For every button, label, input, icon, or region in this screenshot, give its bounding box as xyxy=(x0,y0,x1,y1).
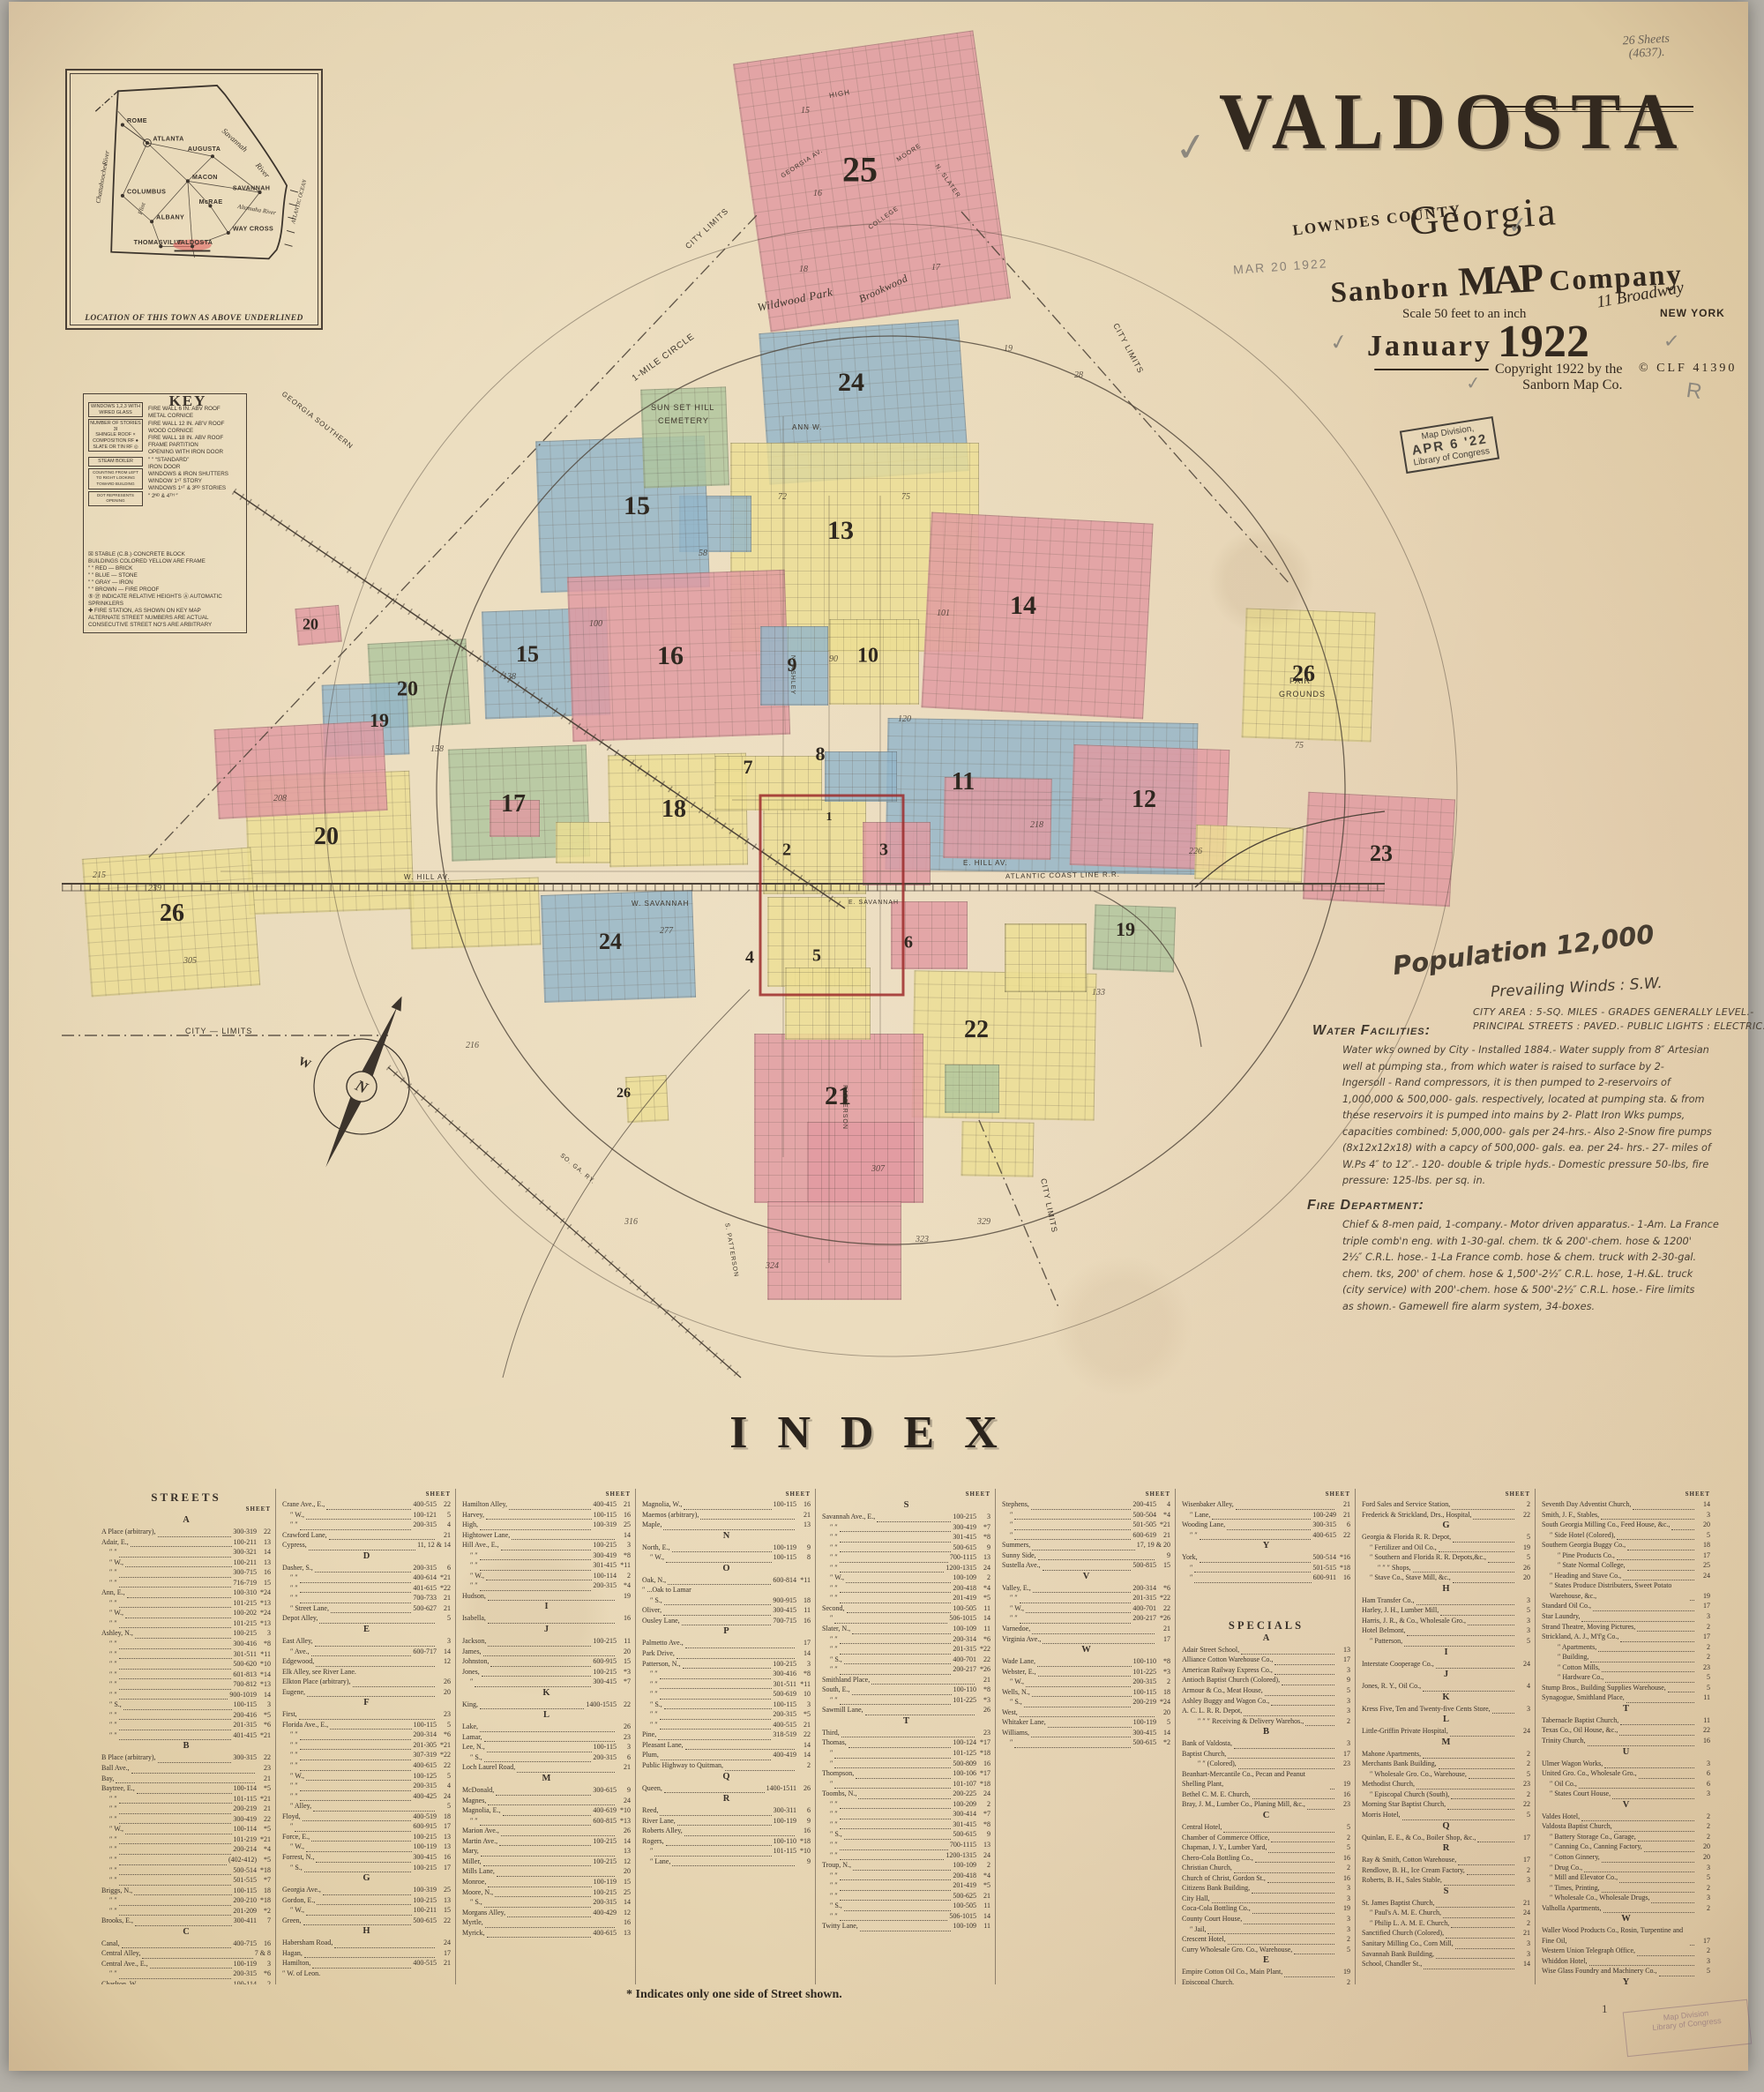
index-letter: Q xyxy=(642,1771,811,1783)
index-entry: Roberts, B. H., Sales Stable,3 xyxy=(1362,1875,1530,1886)
index-entry: James,20 xyxy=(462,1647,631,1657)
index-entry: Harley, J. H., Lumber Mill,5 xyxy=(1362,1605,1530,1616)
index-entry: ″501-505*21 xyxy=(1002,1520,1170,1530)
city-label: ALBANY xyxy=(156,214,184,221)
index-entry: ″ ″300-32114 xyxy=(101,1547,271,1558)
index-specials-header: SPECIALS xyxy=(1182,1618,1350,1633)
index-letter: V xyxy=(1002,1571,1170,1583)
index-entry: ″ ″500-514*18 xyxy=(101,1865,271,1876)
index-entry: Magnolia, W.,100-11516 xyxy=(642,1499,811,1510)
index-letter: N xyxy=(642,1530,811,1543)
city-label: ROME xyxy=(127,117,147,124)
index-entry: Lee, N.,100-1153 xyxy=(462,1742,631,1752)
received-date-stamp: MAR 20 1922 xyxy=(1233,256,1328,276)
map-block xyxy=(945,1065,999,1113)
index-entry: ″ ″400-614*21 xyxy=(282,1573,451,1583)
index-entry: Gordon, E.,100-21513 xyxy=(282,1895,451,1906)
district-number-label: 25 xyxy=(842,149,878,191)
index-entry: Brooks, E.,300-4117 xyxy=(101,1916,271,1926)
index-entry: Central Alley,7 & 8 xyxy=(101,1948,271,1959)
index-entry: Depot Alley,5 xyxy=(282,1613,451,1624)
sheets-count-note: 26 Sheets(4637). xyxy=(1622,33,1671,62)
index-entry: Georgia Ave.,100-31925 xyxy=(282,1885,451,1895)
index-entry: ″500-80916 xyxy=(822,1759,990,1769)
index-entry: ″ ″200-315*6 xyxy=(101,1969,271,1979)
corner-division-stamp: Map Division Library of Congress xyxy=(1623,1999,1753,2058)
index-column: SHEETFord Sales and Service Station,2Fre… xyxy=(1355,1489,1535,1984)
key-line: ″ ″ BROWN — FIRE PROOF xyxy=(88,587,242,594)
street-label: SO. GA. RY. xyxy=(559,1153,597,1185)
index-entry: Tabernacle Baptist Church,11 xyxy=(1542,1715,1710,1726)
index-entry: ″ Street Lane,500-62721 xyxy=(282,1603,451,1614)
street-label: E. HILL AV. xyxy=(963,859,1008,867)
district-number-label: 8 xyxy=(816,743,826,766)
index-letter: R xyxy=(642,1793,811,1805)
index-entry: B Place (arbitrary),300-31522 xyxy=(101,1752,271,1763)
index-entry: ″ ″201-209*2 xyxy=(101,1906,271,1916)
district-number-label: 18 xyxy=(661,796,686,824)
index-entry: Dasher, S.,200-3156 xyxy=(282,1563,451,1573)
index-entry: A Place (arbitrary),300-31922 xyxy=(101,1527,271,1537)
index-entry: ″ W.,100-114*5 xyxy=(101,1824,271,1834)
index-entry: ″ Alley,5 xyxy=(282,1801,451,1812)
index-entry: Wells, N.,100-11518 xyxy=(1002,1687,1170,1698)
index-entry: River Lane,100-1199 xyxy=(642,1816,811,1827)
index-entry: ″506-101514 xyxy=(822,1613,990,1624)
index-column: SHEETSeventh Day Adventist Church,14Smit… xyxy=(1535,1489,1715,1984)
index-letter: O xyxy=(642,1563,811,1575)
key-legend-tail: ☒ STABLE (C.B.)·CONCRETE BLOCKBUILDINGS … xyxy=(88,551,242,629)
index-entry: ″ State Normal College,25 xyxy=(1542,1560,1710,1571)
index-entry: Webster, E.,101-225*3 xyxy=(1002,1667,1170,1677)
index-entry: Public Highway to Quitman,2 xyxy=(642,1760,811,1771)
index-entry: Baptist Church,17 xyxy=(1182,1749,1350,1760)
index-entry: Waller Wood Products Co., Rosin, Turpent… xyxy=(1542,1925,1710,1946)
index-entry: Kress Five, Ten and Twenty-five Cents St… xyxy=(1362,1704,1530,1715)
index-letter: P xyxy=(642,1625,811,1638)
key-line: ☒ STABLE (C.B.)·CONCRETE BLOCK xyxy=(88,551,242,558)
index-entry: Savannah Bank Building,3 xyxy=(1362,1949,1530,1960)
index-entry: ″ S.,100-21517 xyxy=(282,1863,451,1873)
water-facilities-text: Water wks owned by City - Installed 1884… xyxy=(1342,1042,1712,1190)
index-entry: ″ Lane,9 xyxy=(642,1857,811,1867)
map-block xyxy=(625,1075,669,1123)
index-entry: ″ W.,100-202*24 xyxy=(101,1608,271,1618)
index-entry: ″ ″716-71915 xyxy=(101,1578,271,1588)
street-label: W. SAVANNAH xyxy=(632,900,689,908)
index-entry: West,20 xyxy=(1002,1707,1170,1718)
index-letter: G xyxy=(282,1872,451,1885)
map-block xyxy=(912,970,1097,1121)
index-entry: Isabella,16 xyxy=(462,1613,631,1624)
index-entry: ″ ″201-305*21 xyxy=(282,1740,451,1751)
street-label: 1-MILE CIRCLE xyxy=(631,332,697,384)
index-letter: S xyxy=(1362,1886,1530,1898)
index-column: SHEETSSavannah Ave., E.,100-2153″ ″300-4… xyxy=(815,1489,995,1984)
index-entry: Cypress,11, 12 & 14 xyxy=(282,1540,451,1550)
lot-number: 216 xyxy=(466,1041,479,1050)
index-entry: Patterson, N.,100-2153 xyxy=(642,1659,811,1670)
key-line: WINDOW 1ˢᵀ STORY xyxy=(148,478,242,485)
index-entry: Central Ave., E.,100-1193 xyxy=(101,1959,271,1969)
index-entry: King,1400-151522 xyxy=(462,1700,631,1710)
index-letter: R xyxy=(1362,1842,1530,1855)
district-number-label: 4 xyxy=(745,948,754,968)
index-letter: S xyxy=(822,1499,990,1512)
scanned-map-sheet: SavannahRiverChattahoocheeRiverFlintAlta… xyxy=(9,2,1748,2071)
index-entry: ″ Patterson,5 xyxy=(1362,1636,1530,1647)
index-entry: ″ ″200-21921 xyxy=(101,1804,271,1814)
index-entry: ″ Drug Co.,3 xyxy=(1542,1863,1710,1873)
index-entry: ″ ″1200-131524 xyxy=(822,1850,990,1861)
index-entry: ″ ″506-101514 xyxy=(822,1911,990,1922)
lot-number: 90 xyxy=(829,654,838,664)
index-letter: H xyxy=(282,1925,451,1938)
index-letter: Y xyxy=(1542,1976,1710,1984)
district-number-label: 17 xyxy=(501,790,526,818)
index-entry: East Alley,3 xyxy=(282,1636,451,1647)
edition-year: 1922 xyxy=(1498,316,1589,368)
index-entry: ″ ″301-511*11 xyxy=(642,1679,811,1690)
index-entry: Harvey,100-11516 xyxy=(462,1510,631,1520)
index-entry: Moore, N.,100-21525 xyxy=(462,1887,631,1898)
index-entry: ″ ″201-315*22 xyxy=(1002,1593,1170,1603)
district-number-label: 19 xyxy=(1116,918,1135,941)
index-entry: American Railway Express Co.,3 xyxy=(1182,1665,1350,1676)
map-block xyxy=(714,756,822,811)
index-entry: Jackson,100-21511 xyxy=(462,1636,631,1647)
library-of-congress-stamp: Map Division, APR 6 '22 Library of Congr… xyxy=(1400,416,1500,474)
index-entry: Coca-Cola Bottling Co.,19 xyxy=(1182,1903,1350,1914)
pencil-checkmark: ✓ xyxy=(1507,211,1529,240)
index-entry: Sustella Ave.,500-81515 xyxy=(1002,1560,1170,1571)
lot-number: 15 xyxy=(801,106,810,116)
street-label: PATTERSON xyxy=(841,1085,848,1130)
index-entry: Mary,13 xyxy=(462,1846,631,1857)
index-letter: I xyxy=(1362,1647,1530,1659)
index-entry: Ashley Buggy and Wagon Co.,3 xyxy=(1182,1696,1350,1707)
index-sheet-header: SHEET xyxy=(822,1489,990,1499)
index-entry: ″ W.,100-1215 xyxy=(282,1510,451,1520)
map-block xyxy=(1194,825,1304,883)
index-entry: ″ Oil Co.,6 xyxy=(1542,1779,1710,1789)
index-entry: Hagan,17 xyxy=(282,1948,451,1959)
index-entry: Third,23 xyxy=(822,1728,990,1738)
index-letter: V xyxy=(1542,1799,1710,1812)
map-key-legend: KEY WINDOWS 1,2,3 WITHWIRED GLASS NUMBER… xyxy=(83,393,247,633)
index-entry: Savannah Ave., E.,100-2153 xyxy=(822,1512,990,1522)
index-entry: Ann, E.,100-310*24 xyxy=(101,1588,271,1598)
river-label: ATLANTIC OCEAN xyxy=(290,178,308,225)
index-entry: ″ ″301-415*8 xyxy=(822,1819,990,1830)
index-entry: Miller,100-21512 xyxy=(462,1857,631,1867)
index-entry: Sunny Side,9 xyxy=(1002,1550,1170,1561)
lot-number: 28 xyxy=(1074,370,1083,380)
index-entry: Citizens Bank Building,3 xyxy=(1182,1883,1350,1894)
index-entry: Ball Ave.,23 xyxy=(101,1763,271,1774)
street-label: S. PATTERSON xyxy=(723,1222,739,1278)
index-entry: Whitaker Lane,100-1195 xyxy=(1002,1717,1170,1728)
district-number-label: 10 xyxy=(857,645,878,669)
index-entry: ″ Heading and Stave Co.,24 xyxy=(1542,1571,1710,1581)
index-entry: ″ Cotton Ginnery,20 xyxy=(1542,1852,1710,1863)
index-entry: Palmetto Ave.,17 xyxy=(642,1638,811,1648)
index-entry: Magnolia, E.,400-619*10 xyxy=(462,1805,631,1816)
index-entry: Roberts Alley,16 xyxy=(642,1826,811,1836)
lot-number: 323 xyxy=(916,1235,929,1244)
index-entry: Methodist Church,23 xyxy=(1362,1779,1530,1789)
river-label: Flint xyxy=(137,201,147,216)
index-entry: Mahone Apartments,2 xyxy=(1362,1749,1530,1760)
index-entry: ″ S.,100-50511 xyxy=(822,1901,990,1911)
index-entry: ″ ″200-315*5 xyxy=(642,1709,811,1720)
index-entry: Valley, E.,200-314*6 xyxy=(1002,1583,1170,1594)
key-title: KEY xyxy=(134,398,242,405)
title-flourish-line xyxy=(1499,111,1693,112)
copyright-serial: © CLF 41390 xyxy=(1639,362,1737,376)
index-entry: ″ ″ (Colored),23 xyxy=(1182,1759,1350,1769)
index-entry: ″ Times, Printing,2 xyxy=(1542,1883,1710,1894)
index-letter: H xyxy=(1362,1583,1530,1595)
index-entry: High,100-31925 xyxy=(462,1520,631,1530)
georgia-outline-map: SavannahRiverChattahoocheeRiverFlintAlta… xyxy=(76,78,309,298)
pencil-checkmark: ✓ xyxy=(1328,328,1350,356)
lot-number: 307 xyxy=(871,1164,885,1174)
district-number-label: 24 xyxy=(838,368,864,398)
index-entry: ″ ″500-6159 xyxy=(822,1543,990,1553)
index-entry: Texas Co., Oil House, &c.,22 xyxy=(1542,1725,1710,1736)
key-legend-lines: FIRE WALL 6 IN. ABV ROOFMETAL CORNICEFIR… xyxy=(148,406,242,500)
index-entry: Twitty Lane,100-10911 xyxy=(822,1921,990,1931)
index-entry: ″ ″300-71516 xyxy=(101,1567,271,1578)
map-block xyxy=(785,968,871,1040)
copyright-note: Copyright 1922 by theSanborn Map Co. xyxy=(1495,362,1622,393)
index-entry: Empire Cotton Oil Co., Main Plant,19 xyxy=(1182,1967,1350,1977)
index-entry: Adair Street School,13 xyxy=(1182,1645,1350,1655)
district-number-label: 16 xyxy=(657,641,684,671)
index-letter: T xyxy=(822,1715,990,1728)
index-entry: ″ ″400-61522 xyxy=(282,1760,451,1771)
index-entry: ″ Fertilizer and Oil Co.,19 xyxy=(1362,1543,1530,1553)
index-entry: Little-Griffin Private Hospital,24 xyxy=(1362,1726,1530,1737)
svg-text:W: W xyxy=(296,1055,313,1072)
index-entry: ″ ″500-620*10 xyxy=(101,1659,271,1670)
index-note: ″ ...Oak to Lamar xyxy=(642,1585,811,1595)
index-letter: Y xyxy=(1182,1540,1350,1552)
index-entry: ″ ″101-215*13 xyxy=(101,1618,271,1629)
index-note: ″ W. of Leon. xyxy=(282,1969,451,1979)
index-entry: Maemos (arbitrary),21 xyxy=(642,1510,811,1520)
street-label: CITY — LIMITS xyxy=(185,1027,252,1035)
title-flourish-line xyxy=(1473,106,1693,108)
index-entry: Hotel Belmont,3 xyxy=(1362,1625,1530,1636)
index-entry: Edgewood,12 xyxy=(282,1656,451,1667)
index-entry: Episcopal Church,2 xyxy=(1182,1977,1350,1984)
lot-number: 100 xyxy=(589,619,602,629)
index-letter: T xyxy=(1542,1703,1710,1715)
index-entry: ″ Side Hotel (Colored),5 xyxy=(1542,1530,1710,1541)
key-line: FIRE WALL 18 IN. ABV ROOF xyxy=(148,435,242,442)
district-number-label: 24 xyxy=(599,929,622,955)
street-label: CITY LIMITS xyxy=(684,206,730,250)
index-entry: Valdosta Baptist Church,2 xyxy=(1542,1821,1710,1832)
district-number-label: 3 xyxy=(879,841,888,861)
lot-number: 316 xyxy=(624,1217,638,1227)
index-entry: ″ W.,100-11913 xyxy=(282,1842,451,1852)
lot-number: 19 xyxy=(1004,344,1013,354)
index-entry: ″ ″700-812*13 xyxy=(101,1679,271,1690)
index-entry: City Hall,3 xyxy=(1182,1894,1350,1904)
index-streets-header: STREETS xyxy=(101,1491,271,1504)
lot-number: 101 xyxy=(937,609,950,618)
map-block xyxy=(960,1121,1034,1177)
city-label: ATLANTA xyxy=(153,135,183,142)
index-letter: Q xyxy=(1362,1820,1530,1833)
index-entry: ″ W.,100-1255 xyxy=(282,1771,451,1782)
index-entry: ″ ″201-315*22 xyxy=(822,1644,990,1655)
index-sheet-header: SHEET xyxy=(1182,1489,1350,1499)
index-letter: L xyxy=(1362,1714,1530,1726)
index-entry: Chapman, J. Y., Lumber Yard,5 xyxy=(1182,1842,1350,1853)
index-title: INDEX xyxy=(9,1407,1748,1459)
district-number-label: 26 xyxy=(160,900,184,928)
street-label: FAIR xyxy=(1289,676,1311,685)
index-entry: Star Laundry,3 xyxy=(1542,1611,1710,1622)
index-entry: ″ Ave.,600-71714 xyxy=(282,1647,451,1657)
index-entry: ″ ″200-416*5 xyxy=(101,1710,271,1721)
index-entry: Plum,400-41914 xyxy=(642,1750,811,1760)
index-entry: McDonald,300-6159 xyxy=(462,1785,631,1796)
index-entry: ″ ″601-813*14 xyxy=(101,1670,271,1680)
index-entry: Stephens,200-4154 xyxy=(1002,1499,1170,1510)
index-entry: ″ S.,200-3156 xyxy=(462,1752,631,1763)
index-entry: ″ W.,200-3152 xyxy=(1002,1677,1170,1687)
index-entry: Synagogue, Smithland Place,11 xyxy=(1542,1692,1710,1703)
index-entry: ″ ″101-215*13 xyxy=(101,1598,271,1609)
index-letter: A xyxy=(101,1514,271,1527)
street-label: GROUNDS xyxy=(1279,690,1326,699)
index-entry: Loch Laurel Road,21 xyxy=(462,1762,631,1773)
district-number-label: 15 xyxy=(624,491,650,521)
key-line: FIRE WALL 12 IN. AB'V ROOF xyxy=(148,421,242,428)
index-entry: Martin Ave.,100-21514 xyxy=(462,1836,631,1847)
index-entry: ″ Battery Storage Co., Garage,2 xyxy=(1542,1832,1710,1842)
index-entry: Wooding Lane,300-3156 xyxy=(1182,1520,1350,1530)
index-entry: ″ Philip L. A. M. E. Church,2 xyxy=(1362,1918,1530,1929)
index-letter: B xyxy=(101,1740,271,1752)
page-title: VALDOSTA xyxy=(1219,76,1686,168)
index-letter: M xyxy=(462,1773,631,1785)
index-entry: Chamber of Commerce Office,2 xyxy=(1182,1833,1350,1843)
index-column: SHEETStephens,200-4154″500-504*4″501-505… xyxy=(995,1489,1175,1984)
map-block xyxy=(863,822,931,885)
index-entry: ″ Building,2 xyxy=(1542,1652,1710,1662)
index-entry: Stump Bros., Building Supplies Warehouse… xyxy=(1542,1683,1710,1693)
index-entry: Ousley Lane,700-71516 xyxy=(642,1616,811,1626)
index-entry: ″ S.,100-1153 xyxy=(642,1700,811,1710)
index-entry: Wade Lane,100-110*8 xyxy=(1002,1656,1170,1667)
key-line: WINDOWS & IRON SHUTTERS xyxy=(148,471,242,478)
index-entry: Hill Ave., E.,100-2153 xyxy=(462,1540,631,1550)
index-entry: ″300-415*7 xyxy=(462,1677,631,1687)
index-entry: Myrtle,16 xyxy=(462,1917,631,1928)
map-block xyxy=(1005,923,1087,992)
index-entry: Oliver,300-41511 xyxy=(642,1605,811,1616)
index-entry: Crescent Hotel,2 xyxy=(1182,1934,1350,1945)
water-facilities-heading: Water Facilities: xyxy=(1312,1023,1431,1039)
index-letter: J xyxy=(1362,1669,1530,1681)
index-entry: ″ ″200-314*6 xyxy=(282,1730,451,1740)
index-entry: Eugene,20 xyxy=(282,1687,451,1698)
index-entry: Floyd,400-51918 xyxy=(282,1812,451,1822)
key-symbol-table: WINDOWS 1,2,3 WITHWIRED GLASS NUMBER OF … xyxy=(88,402,143,508)
index-entry: ″ ″200-314*6 xyxy=(822,1634,990,1645)
index-entry: Bank of Valdosta,3 xyxy=(1182,1738,1350,1749)
index-entry: Summers,17, 19 & 20 xyxy=(1002,1540,1170,1550)
index-entry: ″ Episcopal Church (South),2 xyxy=(1362,1789,1530,1800)
index-sheet-header: SHEET xyxy=(642,1489,811,1499)
index-entry: Frederick & Strickland, Drs., Hospital,2… xyxy=(1362,1510,1530,1520)
street-label: CEMETERY xyxy=(658,416,709,425)
index-entry: ″ W.,400-70122 xyxy=(1002,1603,1170,1614)
index-letter: C xyxy=(1182,1810,1350,1822)
lot-number: 239 xyxy=(148,884,161,893)
river-label: River xyxy=(101,150,111,167)
district-number-label: 19 xyxy=(370,709,389,732)
street-label: ANN W. xyxy=(792,423,822,431)
index-entry: Ulmer Wagon Works,3 xyxy=(1542,1759,1710,1769)
district-number-label: 26 xyxy=(617,1086,631,1102)
index-entry: ″ Paul's A. M. E. Church,24 xyxy=(1362,1908,1530,1918)
lot-number: 218 xyxy=(1030,820,1043,830)
index-entry: ″ ″700-73321 xyxy=(282,1593,451,1603)
key-line: WOOD CORNICE xyxy=(148,428,242,435)
index-entry: Jones,100-215*3 xyxy=(462,1667,631,1677)
index-entry: ″ W.,100-1158 xyxy=(642,1552,811,1563)
key-line: ″ ″ “STANDARD” xyxy=(148,457,242,464)
district-number-label: 20 xyxy=(397,678,418,702)
lot-number: 305 xyxy=(183,956,197,966)
index-entry: ″ ″700-111513 xyxy=(822,1552,990,1563)
index-entry: ″ W.,100-1142 xyxy=(462,1571,631,1581)
inset-caption: LOCATION OF THIS TOWN AS ABOVE UNDERLINE… xyxy=(67,314,321,323)
winds-note: Prevailing Winds : S.W. xyxy=(1491,975,1663,1001)
index-entry: Whiddon Hotel,3 xyxy=(1542,1956,1710,1967)
street-label: GEORGIA SOUTHERN xyxy=(280,390,355,451)
index-entry: ″ ″200-418*4 xyxy=(822,1871,990,1881)
index-letter: K xyxy=(1362,1692,1530,1704)
index-entry: ″ ″400-42524 xyxy=(282,1791,451,1802)
lot-number: 72 xyxy=(778,492,787,502)
index-entry: Strand Theatre, Moving Pictures,2 xyxy=(1542,1622,1710,1633)
lot-number: 58 xyxy=(699,549,707,558)
index-sheet-header: SHEET xyxy=(1362,1489,1530,1499)
edition-month: January xyxy=(1367,330,1492,363)
index-entry: County Court House,3 xyxy=(1182,1914,1350,1924)
index-entry: ″ ″900-101914 xyxy=(101,1690,271,1700)
index-letter: G xyxy=(1362,1520,1530,1532)
index-entry: Monroe,100-11915 xyxy=(462,1877,631,1887)
index-entry: ″ States Produce Distributers, Sweet Pot… xyxy=(1542,1580,1710,1601)
index-letter: B xyxy=(1182,1726,1350,1738)
population-note: Population 12,000 xyxy=(1391,919,1656,981)
index-entry: Hudson,19 xyxy=(462,1591,631,1602)
index-entry: Williams,300-41514 xyxy=(1002,1728,1170,1738)
district-number-label: 7 xyxy=(744,756,753,779)
district-number-label: 11 xyxy=(952,768,975,796)
street-label: CITY LIMITS xyxy=(1111,322,1145,375)
index-entry: Smith, J. F., Stables,3 xyxy=(1542,1510,1710,1520)
